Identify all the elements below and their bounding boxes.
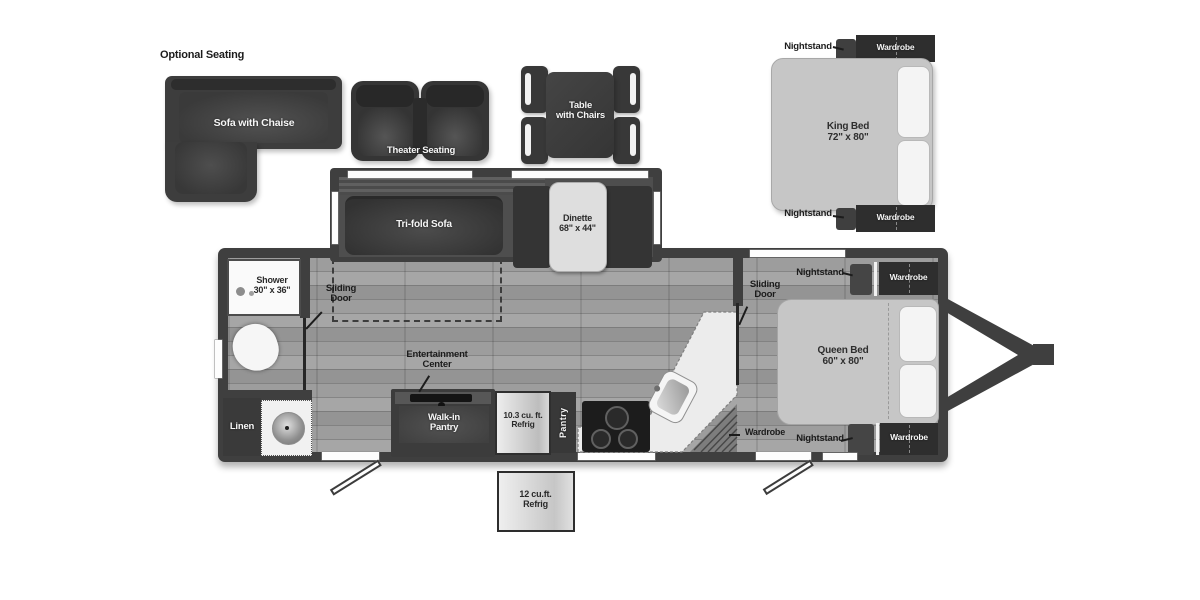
entry-door-opening-left [322, 452, 379, 460]
queen-wardrobe-bottom: Wardrobe [880, 423, 938, 455]
burner-icon-left [591, 429, 611, 449]
slideout-window-left [332, 192, 338, 244]
bathroom-sliding-door-label: Sliding Door [316, 284, 366, 305]
burner-icon-right [618, 429, 638, 449]
kitchen-sink-basin [655, 377, 691, 417]
linen-label: Linen [223, 422, 261, 432]
bedroom-sliding-door-track [736, 303, 739, 385]
queen-top-divider [874, 262, 877, 296]
queen-nightstand-top-label: Nightstand [794, 268, 846, 278]
queen-bed-label: Queen Bed 60" x 80" [793, 346, 893, 368]
tri-fold-sofa: Tri-fold Sofa [345, 196, 503, 255]
theater-seating-label: Theater Seating [376, 146, 466, 156]
window-rear-wall [215, 340, 222, 378]
king-nightstand-bottom-label: Nightstand [782, 209, 834, 219]
queen-wardrobe-bottom-label: Wardrobe [880, 433, 938, 442]
faucet-icon [653, 384, 661, 392]
queen-nightstand-top [850, 264, 872, 295]
slideout-window-right [654, 192, 660, 244]
bedroom-wardrobe-floor-label: Wardrobe [741, 428, 789, 438]
entry-door-leaf-left [330, 460, 382, 496]
dining-chair-top-left [521, 66, 548, 113]
bathroom-wall-vertical [300, 252, 310, 318]
entry-door-opening-right [756, 452, 811, 460]
floorplan-canvas: Optional Seating Sofa with Chaise Theate… [0, 0, 1200, 600]
bathroom-vanity [261, 400, 312, 456]
refrigerator-103: 10.3 cu. ft. Refrig [495, 391, 551, 455]
burner-icon-large [605, 406, 629, 430]
refrigerator-12-label: 12 cu.ft. Refrig [499, 490, 572, 509]
bedroom-wardrobe-floor-leader [729, 434, 740, 436]
hitch-a-frame [946, 298, 1038, 412]
sofa-with-chaise [165, 76, 342, 149]
sofa-back-cushion [171, 79, 336, 90]
queen-wardrobe-top: Wardrobe [879, 262, 938, 295]
king-wardrobe-top-label: Wardrobe [856, 43, 935, 52]
theater-seat-right-back [426, 85, 484, 107]
king-bed-label: King Bed 72" x 80" [798, 122, 898, 144]
dining-chair-bottom-right [613, 117, 640, 164]
walk-in-pantry-label: Walk-in Pantry [399, 413, 489, 434]
dinette-label: Dinette 68" x 44" [550, 214, 605, 233]
queen-nightstand-bottom-label: Nightstand [794, 434, 846, 444]
sofa-chaise-extension [165, 142, 257, 202]
optional-seating-heading: Optional Seating [160, 50, 280, 62]
dinette-bench-left [513, 186, 551, 268]
entertainment-center-label: Entertainment Center [397, 350, 477, 371]
king-pillow-bottom [897, 140, 930, 206]
entertainment-cabinet: Walk-in Pantry [391, 389, 495, 457]
queen-nightstand-bottom [848, 424, 874, 455]
window-top-bedroom [750, 250, 845, 257]
pantry-label: Pantry [559, 398, 571, 448]
queen-wardrobe-top-label: Wardrobe [879, 273, 938, 282]
cooktop [582, 401, 650, 452]
queen-bottom-divider [876, 423, 879, 455]
table-with-chairs-label: Table with Chairs [552, 101, 609, 122]
bedroom-sliding-door-label: Sliding Door [740, 280, 790, 301]
entry-door-leaf-right [763, 460, 814, 496]
king-pillow-top [897, 66, 930, 138]
shower-label: Shower 30" x 36" [243, 276, 301, 295]
king-nightstand-bottom [836, 208, 856, 230]
window-bottom-kitchen [578, 453, 655, 460]
dining-chair-top-right [613, 66, 640, 113]
slideout-window-top-left [348, 171, 472, 178]
dinette-bench-right [603, 186, 652, 268]
hitch-coupler [1033, 344, 1054, 365]
tri-fold-sofa-label: Tri-fold Sofa [345, 220, 503, 231]
sofa-with-chaise-label: Sofa with Chaise [180, 118, 328, 129]
refrigerator-12: 12 cu.ft. Refrig [497, 471, 575, 532]
king-wardrobe-bottom: Wardrobe [856, 205, 935, 232]
shower: Shower 30" x 36" [227, 259, 301, 316]
chaise-cushion-highlight [175, 142, 247, 194]
walk-in-pantry-box: Walk-in Pantry [399, 406, 489, 443]
dinette-table: Dinette 68" x 44" [549, 182, 607, 272]
theater-seat-left-back [356, 85, 414, 107]
tv-icon [410, 394, 472, 402]
window-bottom-bedroom [823, 453, 857, 460]
dining-chair-bottom-left [521, 117, 548, 164]
slideout-window-top-right [512, 171, 648, 178]
linen-cabinet: Linen [223, 398, 261, 456]
sink-drain-icon [285, 426, 289, 430]
refrigerator-103-label: 10.3 cu. ft. Refrig [497, 411, 549, 429]
pantry-cabinet: Pantry [551, 392, 576, 453]
queen-pillow-bottom [899, 364, 937, 418]
king-wardrobe-bottom-label: Wardrobe [856, 213, 935, 222]
king-nightstand-top-label: Nightstand [782, 42, 834, 52]
queen-pillow-top [899, 306, 937, 362]
